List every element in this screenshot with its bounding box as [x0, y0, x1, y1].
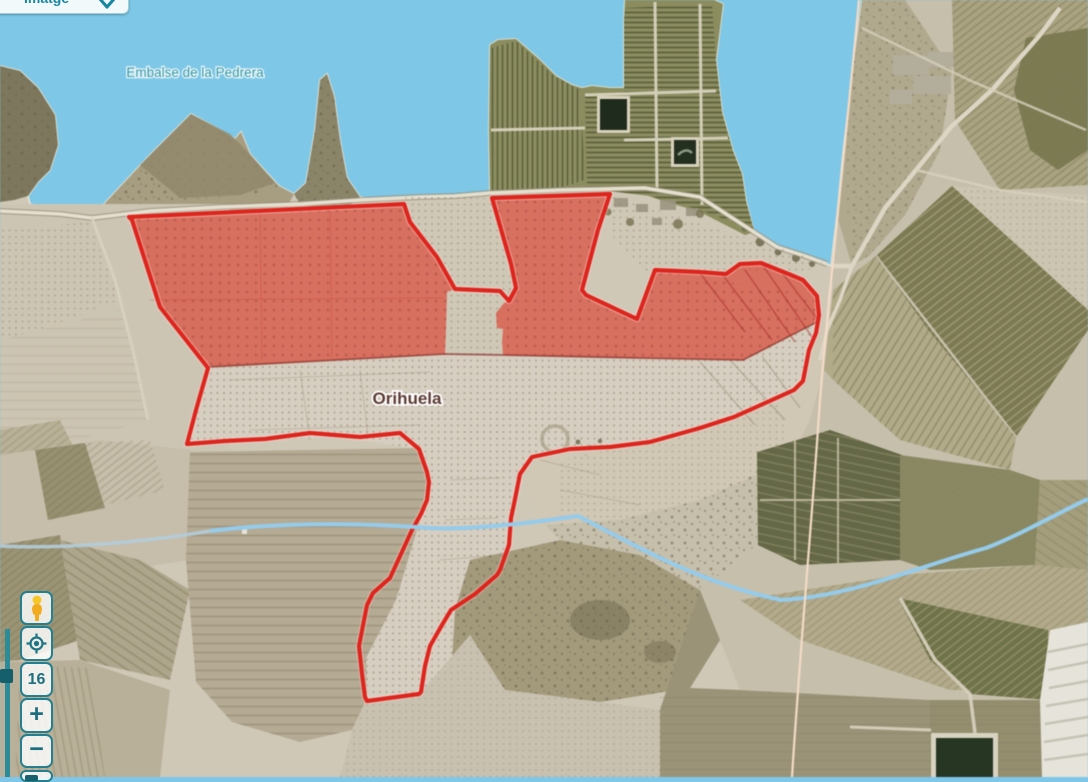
svg-text:Orihuela: Orihuela — [373, 389, 443, 408]
svg-text:Embalse de la Pedrera: Embalse de la Pedrera — [126, 65, 264, 80]
